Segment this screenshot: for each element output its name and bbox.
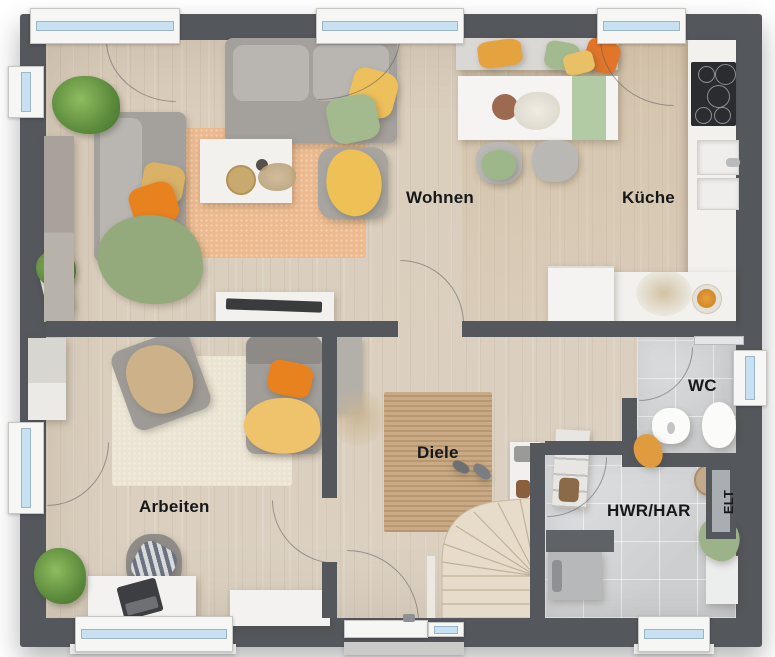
stair-side-wall (427, 556, 435, 618)
room-label-wc: WC (688, 376, 717, 396)
toilet (702, 402, 736, 448)
flowers-white (514, 92, 560, 130)
dried-plant (330, 390, 386, 446)
window-glass (603, 21, 680, 31)
burner (714, 107, 731, 124)
window-glass (745, 356, 755, 400)
fruit (697, 289, 716, 308)
window-glass (322, 21, 458, 31)
flower-sprig (636, 270, 692, 316)
faucet (726, 158, 740, 167)
window-top-2 (316, 8, 464, 44)
tv (226, 298, 322, 312)
washer-door (552, 560, 562, 592)
window-top-3 (597, 8, 686, 44)
cabinet-topleft (28, 338, 66, 420)
table-runner (572, 76, 606, 140)
window-glass (81, 629, 227, 639)
decor-plate (226, 165, 256, 195)
window-glass (434, 626, 458, 634)
tv-board (216, 292, 334, 322)
washing-machine (548, 552, 602, 600)
window-left-1 (8, 66, 44, 118)
kitchen-sink-lower (697, 178, 739, 210)
terrace-door-left (8, 422, 44, 514)
room-label-kueche: Küche (622, 188, 675, 208)
window-glass (644, 629, 704, 639)
sideboard-left (44, 136, 74, 322)
sink-drain (667, 422, 675, 434)
sofa-cushion (233, 45, 309, 101)
entrance-door (344, 620, 428, 638)
window-bottom-2 (638, 616, 710, 652)
wall-horizontal-right (462, 321, 736, 337)
fruit-bowl (692, 284, 722, 314)
window-glass (21, 72, 31, 112)
window-glass (36, 21, 174, 31)
wall-arbeiten-lower (322, 562, 337, 618)
burner (698, 66, 715, 83)
window-right-wc (733, 350, 767, 406)
kitchen-appliance (548, 266, 614, 324)
wall-horizontal-left (46, 321, 398, 337)
floor-plan: Wohnen Küche Arbeiten Diele WC HWR/HAR E… (0, 0, 775, 657)
work-plant (34, 548, 86, 604)
wall-stairs (530, 443, 545, 618)
dryer (706, 556, 738, 604)
staircase (434, 492, 540, 618)
burner (707, 85, 730, 108)
room-label-elt: ELT (721, 472, 739, 532)
dining-table (458, 76, 618, 140)
entrance-step (344, 642, 464, 655)
room-label-diele: Diele (417, 443, 459, 463)
window-top-1 (30, 8, 180, 44)
laundry-counter (546, 530, 614, 552)
window-glass (21, 428, 31, 508)
cabinet-bottom (230, 590, 330, 626)
room-label-hwr: HWR/HAR (607, 501, 691, 521)
cooktop (691, 62, 736, 126)
decor-plant-fronds (258, 163, 296, 191)
window-bottom-1 (75, 616, 233, 652)
wall-arbeiten-upper (322, 337, 337, 498)
burner (695, 107, 712, 124)
laptop-keyboard (125, 596, 159, 616)
door-handle (403, 614, 415, 622)
towel-rail (694, 336, 744, 345)
coffee-table (200, 139, 292, 203)
wall-hwr-top (545, 441, 637, 455)
burner (715, 64, 736, 85)
entrance-sidelight (428, 622, 464, 637)
dining-chair-right (532, 140, 578, 182)
room-label-wohnen: Wohnen (406, 188, 474, 208)
room-label-arbeiten: Arbeiten (139, 497, 210, 517)
laptop (116, 577, 163, 620)
